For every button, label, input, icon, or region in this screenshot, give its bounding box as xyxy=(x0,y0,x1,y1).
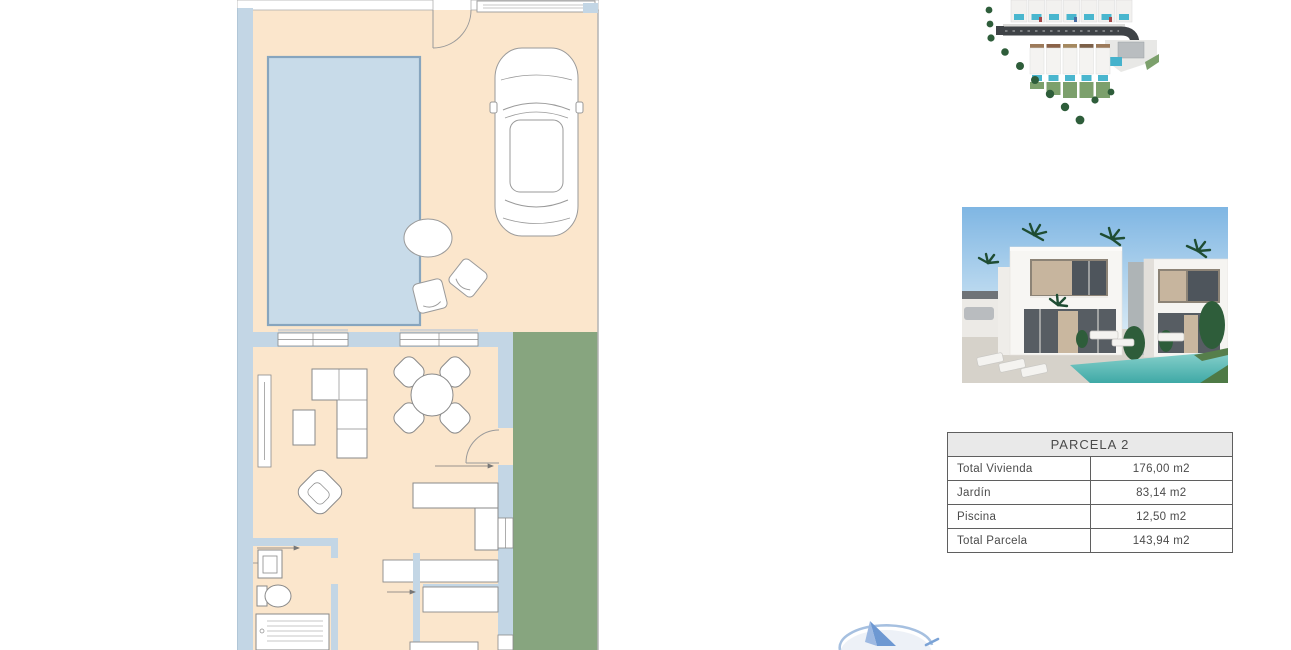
swimming-pool xyxy=(268,57,420,325)
site-plan-corner-plot xyxy=(1105,40,1159,72)
car xyxy=(964,307,994,320)
brand-logo xyxy=(830,618,942,650)
window-icon xyxy=(258,375,271,467)
window-icon xyxy=(498,518,513,548)
table-row: Total Vivienda 176,00 m2 xyxy=(948,457,1233,481)
table-row: Jardín 83,14 m2 xyxy=(948,481,1233,505)
row-label: Piscina xyxy=(948,505,1091,529)
window-icon xyxy=(498,635,513,650)
floor-plan xyxy=(237,0,599,650)
site-plan-lower-villas xyxy=(1030,44,1110,98)
bathroom-wall xyxy=(253,538,338,546)
parked-car-icon xyxy=(490,48,583,236)
exterior-render-picture xyxy=(962,207,1228,383)
side-table-icon xyxy=(293,410,315,445)
site-plan-drawing xyxy=(985,0,1161,126)
parcel-table: PARCELA 2 Total Vivienda 176,00 m2 Jardí… xyxy=(947,432,1233,553)
row-value: 12,50 m2 xyxy=(1090,505,1233,529)
site-plan-top-villas xyxy=(1011,0,1132,22)
row-value: 83,14 m2 xyxy=(1090,481,1233,505)
table-row: Total Parcela 143,94 m2 xyxy=(948,529,1233,553)
left-wall xyxy=(237,8,253,650)
garden-strip xyxy=(513,332,598,650)
row-label: Total Vivienda xyxy=(948,457,1091,481)
bathtub-icon xyxy=(256,614,329,650)
top-wall xyxy=(237,0,433,10)
toilet-icon xyxy=(257,585,291,607)
driveway-gate-icon xyxy=(477,1,595,12)
row-label: Total Parcela xyxy=(948,529,1091,553)
parcel-table-header: PARCELA 2 xyxy=(948,433,1233,457)
bed-icon xyxy=(410,642,478,650)
page-canvas: PARCELA 2 Total Vivienda 176,00 m2 Jardí… xyxy=(0,0,1291,650)
table-row: Piscina 12,50 m2 xyxy=(948,505,1233,529)
terrace-round-table xyxy=(404,219,452,257)
exterior-render xyxy=(962,207,1228,383)
sailboat-logo-icon xyxy=(830,618,942,650)
floor-plan-drawing xyxy=(237,0,599,650)
terrace-chair xyxy=(412,278,448,314)
row-label: Jardín xyxy=(948,481,1091,505)
row-value: 176,00 m2 xyxy=(1090,457,1233,481)
carport xyxy=(962,291,1004,299)
garden-wall xyxy=(498,347,513,650)
row-value: 143,94 m2 xyxy=(1090,529,1233,553)
site-plan xyxy=(985,0,1161,126)
hall-wall xyxy=(413,553,420,650)
